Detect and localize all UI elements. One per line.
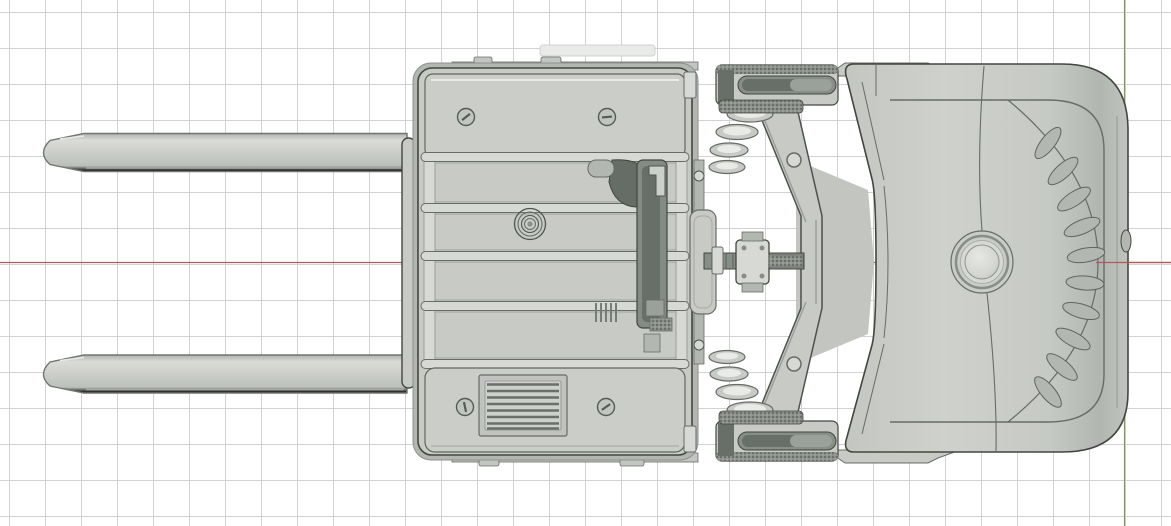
screw [599,109,616,126]
model-render-layer [0,0,1171,526]
screw [458,109,475,126]
cad-viewport-canvas[interactable] [0,0,1171,526]
fork-carriage[interactable] [413,63,698,460]
vent-grille [479,375,567,436]
side-latch [1121,230,1131,252]
horn-button[interactable] [951,231,1013,293]
wheel-bogie-upper[interactable] [716,65,838,113]
pivot-pin [787,153,801,167]
pivot-pin [787,357,801,371]
push-rod[interactable] [690,210,804,314]
screw [457,399,474,416]
drive-unit-cover[interactable] [796,63,1131,463]
fork-upper[interactable] [44,134,408,172]
steering-linkage[interactable] [684,65,838,461]
screw [598,399,615,416]
roller-stack-upper [709,106,773,174]
fork-lower[interactable] [44,355,408,393]
roller-stack-lower [709,351,773,419]
wheel-bogie-lower[interactable] [716,411,838,461]
